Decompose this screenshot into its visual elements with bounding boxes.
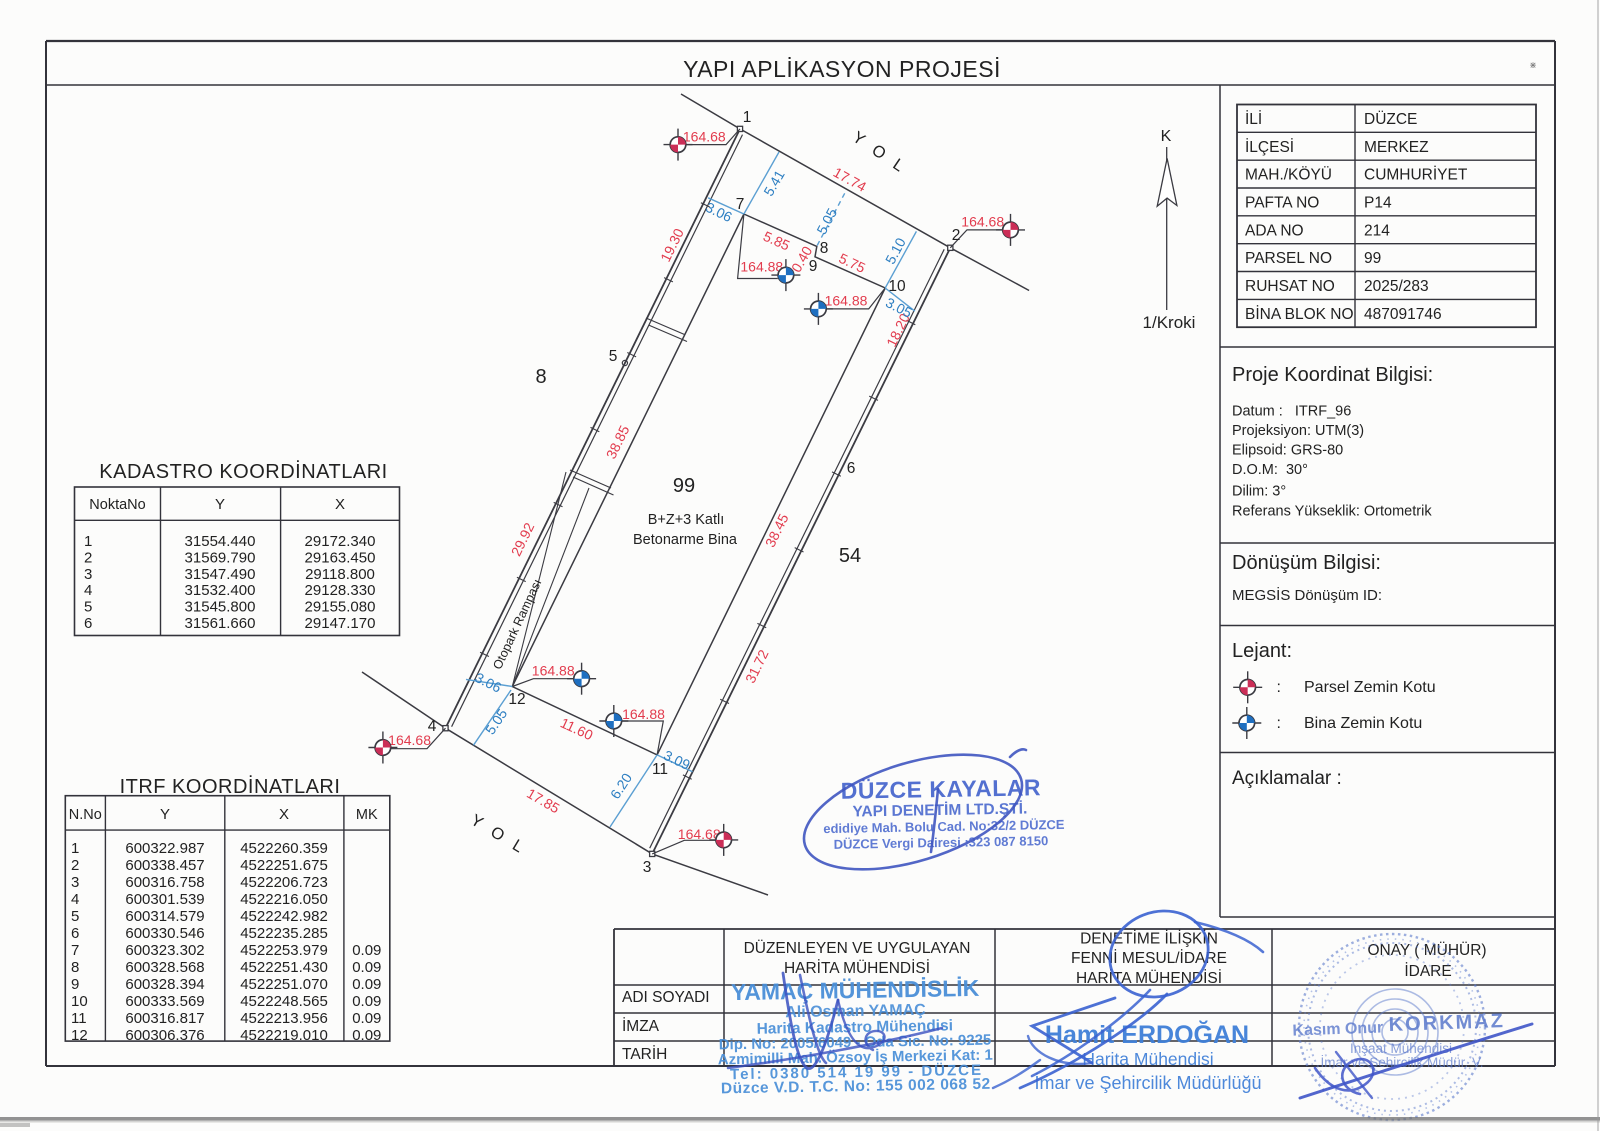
svg-text:PARSEL NO: PARSEL NO xyxy=(1245,250,1332,267)
svg-text:Dönüşüm Bilgisi:: Dönüşüm Bilgisi: xyxy=(1232,552,1381,574)
svg-text:TARİH: TARİH xyxy=(622,1045,667,1063)
svg-text::: : xyxy=(1276,679,1280,696)
svg-text:DÜZCE: DÜZCE xyxy=(1364,110,1417,128)
svg-text:600301.539: 600301.539 xyxy=(125,891,204,908)
svg-text:4522251.070: 4522251.070 xyxy=(240,976,328,993)
svg-text:12: 12 xyxy=(71,1027,88,1044)
svg-text:31532.400: 31532.400 xyxy=(185,582,256,599)
svg-text:29172.340: 29172.340 xyxy=(305,533,376,550)
svg-text:MERKEZ: MERKEZ xyxy=(1364,139,1429,156)
svg-text:2025/283: 2025/283 xyxy=(1364,278,1429,295)
svg-text:0.09: 0.09 xyxy=(352,993,381,1010)
svg-text:7: 7 xyxy=(736,196,745,213)
svg-text:4: 4 xyxy=(71,891,79,908)
svg-text:Açıklamalar :: Açıklamalar : xyxy=(1232,768,1342,789)
svg-text:600328.568: 600328.568 xyxy=(125,959,204,976)
svg-text:0.09: 0.09 xyxy=(352,1010,381,1027)
svg-text:4522235.285: 4522235.285 xyxy=(240,925,328,942)
svg-text:NoktaNo: NoktaNo xyxy=(89,497,145,513)
svg-text:4522242.982: 4522242.982 xyxy=(240,908,328,925)
svg-text:BİNA BLOK NO: BİNA BLOK NO xyxy=(1245,305,1354,323)
svg-text:12: 12 xyxy=(508,691,525,708)
svg-text:X: X xyxy=(279,806,289,823)
svg-text:Projeksiyon: UTM(3): Projeksiyon: UTM(3) xyxy=(1232,423,1364,439)
svg-text:Y: Y xyxy=(160,806,170,823)
svg-text:İDARE: İDARE xyxy=(1404,962,1451,980)
svg-text:4522251.430: 4522251.430 xyxy=(240,959,328,976)
svg-text:4522216.050: 4522216.050 xyxy=(240,891,328,908)
svg-text:600314.579: 600314.579 xyxy=(125,908,204,925)
svg-text:8: 8 xyxy=(71,959,79,976)
svg-text:1: 1 xyxy=(71,840,79,857)
svg-text:164.88: 164.88 xyxy=(740,259,783,275)
svg-text:164.68: 164.68 xyxy=(388,732,431,748)
svg-text:MEGSİS Dönüşüm ID:: MEGSİS Dönüşüm ID: xyxy=(1232,586,1382,604)
svg-text:31554.440: 31554.440 xyxy=(185,533,256,550)
svg-text:487091746: 487091746 xyxy=(1364,306,1442,323)
svg-text:99: 99 xyxy=(1364,250,1381,267)
svg-text:164.68: 164.68 xyxy=(683,128,726,144)
svg-text:600338.457: 600338.457 xyxy=(125,857,204,874)
svg-text:6: 6 xyxy=(84,615,92,632)
svg-text:4522260.359: 4522260.359 xyxy=(240,840,328,857)
svg-text:164.88: 164.88 xyxy=(825,293,868,309)
svg-text:3: 3 xyxy=(84,566,92,583)
svg-text:CUMHURİYET: CUMHURİYET xyxy=(1364,166,1468,184)
svg-text:9: 9 xyxy=(809,258,818,275)
svg-text:Datum : ITRF_96: Datum : ITRF_96 xyxy=(1232,404,1351,420)
svg-text:YAMAÇ MÜHENDİSLİK: YAMAÇ MÜHENDİSLİK xyxy=(731,975,980,1005)
svg-text:31569.790: 31569.790 xyxy=(185,550,256,567)
svg-text:29128.330: 29128.330 xyxy=(305,582,376,599)
svg-text:600328.394: 600328.394 xyxy=(125,976,204,993)
svg-text:4522248.565: 4522248.565 xyxy=(240,993,328,1010)
svg-text:4522213.956: 4522213.956 xyxy=(240,1010,328,1027)
svg-text:Proje Koordinat Bilgisi:: Proje Koordinat Bilgisi: xyxy=(1232,364,1433,386)
svg-text:0.09: 0.09 xyxy=(352,959,381,976)
svg-text:KORKMAZ: KORKMAZ xyxy=(1388,1010,1505,1036)
svg-text:1: 1 xyxy=(743,109,752,126)
svg-text:P14: P14 xyxy=(1364,194,1392,211)
svg-text:X: X xyxy=(335,496,345,513)
svg-text:164.88: 164.88 xyxy=(532,663,575,679)
svg-text:2: 2 xyxy=(952,227,961,244)
svg-text:Y: Y xyxy=(215,496,225,513)
svg-text:⋇: ⋇ xyxy=(1529,60,1537,70)
svg-text:DÜZCE KAYALAR: DÜZCE KAYALAR xyxy=(840,774,1041,803)
svg-text:1: 1 xyxy=(84,533,92,550)
svg-text:4522219.010: 4522219.010 xyxy=(240,1027,328,1044)
svg-text:Dilim: 3°: Dilim: 3° xyxy=(1232,484,1286,500)
svg-text:6: 6 xyxy=(71,925,79,942)
svg-text:600306.376: 600306.376 xyxy=(125,1027,204,1044)
svg-text:ADA NO: ADA NO xyxy=(1245,222,1304,239)
svg-text:RUHSAT NO: RUHSAT NO xyxy=(1245,278,1335,295)
svg-text:600330.546: 600330.546 xyxy=(125,925,204,942)
svg-text:4: 4 xyxy=(428,718,437,735)
svg-text:6: 6 xyxy=(847,460,856,477)
svg-text:54: 54 xyxy=(839,545,861,567)
svg-text:11: 11 xyxy=(652,761,668,778)
svg-text:PAFTA NO: PAFTA NO xyxy=(1245,194,1319,211)
svg-text:600333.569: 600333.569 xyxy=(125,993,204,1010)
svg-text:İLÇESİ: İLÇESİ xyxy=(1245,138,1294,156)
svg-text:11: 11 xyxy=(71,1010,87,1027)
svg-text:2: 2 xyxy=(71,857,79,874)
svg-text:1/Kroki: 1/Kroki xyxy=(1143,313,1196,332)
svg-text:164.68: 164.68 xyxy=(961,214,1004,230)
svg-text:ADI SOYADI: ADI SOYADI xyxy=(622,989,710,1006)
svg-text:3: 3 xyxy=(71,874,79,891)
svg-text:10: 10 xyxy=(888,278,906,295)
svg-text:İLİ: İLİ xyxy=(1245,110,1262,128)
svg-text:Harita Mühendisi: Harita Mühendisi xyxy=(1082,1049,1213,1069)
svg-text:FENNİ MESUL/İDARE: FENNİ MESUL/İDARE xyxy=(1071,949,1227,967)
svg-text:0.09: 0.09 xyxy=(352,1027,381,1044)
svg-text:600316.758: 600316.758 xyxy=(125,874,204,891)
svg-text:YAPI APLİKASYON PROJESİ: YAPI APLİKASYON PROJESİ xyxy=(683,56,1001,82)
svg-text:29118.800: 29118.800 xyxy=(305,566,375,583)
svg-text:9: 9 xyxy=(71,976,79,993)
svg-text:K: K xyxy=(1161,128,1172,145)
svg-text:4522251.675: 4522251.675 xyxy=(240,857,328,874)
svg-text:4522253.979: 4522253.979 xyxy=(240,942,328,959)
svg-text:5: 5 xyxy=(71,908,79,925)
svg-text:31561.660: 31561.660 xyxy=(185,615,256,632)
svg-text:600316.817: 600316.817 xyxy=(125,1010,204,1027)
svg-text:164.88: 164.88 xyxy=(622,706,665,722)
svg-text:İMZA: İMZA xyxy=(622,1017,660,1035)
svg-text:ONAY ( MÜHÜR): ONAY ( MÜHÜR) xyxy=(1367,941,1486,959)
svg-text:600323.302: 600323.302 xyxy=(125,942,204,959)
svg-text:29163.450: 29163.450 xyxy=(305,550,376,567)
svg-text:5: 5 xyxy=(609,348,618,365)
svg-text:D.O.M: 30°: D.O.M: 30° xyxy=(1232,462,1308,478)
svg-text:ITRF KOORDİNATLARI: ITRF KOORDİNATLARI xyxy=(120,775,341,798)
svg-text:MAH./KÖYÜ: MAH./KÖYÜ xyxy=(1245,166,1332,184)
svg-text:8: 8 xyxy=(820,240,829,257)
svg-text:4522206.723: 4522206.723 xyxy=(240,874,328,891)
svg-text:Lejant:: Lejant: xyxy=(1232,640,1292,662)
svg-text:10: 10 xyxy=(71,993,88,1010)
svg-text:99: 99 xyxy=(673,475,695,497)
svg-text:Hamit ERDOĞAN: Hamit ERDOĞAN xyxy=(1045,1020,1249,1049)
svg-text:2: 2 xyxy=(84,550,92,567)
svg-text:29147.170: 29147.170 xyxy=(305,615,376,632)
svg-text:İmar ve Şehircilik Müdürlüğü: İmar ve Şehircilik Müdürlüğü xyxy=(1034,1073,1261,1093)
svg-text:31547.490: 31547.490 xyxy=(185,566,256,583)
svg-text:DÜZENLEYEN VE UYGULAYAN: DÜZENLEYEN VE UYGULAYAN xyxy=(744,939,971,957)
svg-text:MK: MK xyxy=(356,807,378,823)
svg-text:Bina Zemin Kotu: Bina Zemin Kotu xyxy=(1304,715,1422,732)
svg-text:4: 4 xyxy=(84,582,92,599)
svg-text:Kasım Onur: Kasım Onur xyxy=(1292,1019,1383,1039)
svg-text:DENETİME İLİŞKİN: DENETİME İLİŞKİN xyxy=(1080,930,1218,948)
svg-text:KADASTRO KOORDİNATLARI: KADASTRO KOORDİNATLARI xyxy=(99,460,387,483)
svg-text:0.09: 0.09 xyxy=(352,942,381,959)
svg-text:3: 3 xyxy=(643,859,652,876)
svg-text:600322.987: 600322.987 xyxy=(125,840,204,857)
svg-text:Elipsoid: GRS-80: Elipsoid: GRS-80 xyxy=(1232,443,1343,459)
svg-text:Referans Yükseklik: Ortometrik: Referans Yükseklik: Ortometrik xyxy=(1232,504,1432,520)
svg-text:8: 8 xyxy=(535,366,546,388)
svg-text:214: 214 xyxy=(1364,222,1390,239)
svg-text:Parsel Zemin Kotu: Parsel Zemin Kotu xyxy=(1304,679,1436,696)
svg-text:29155.080: 29155.080 xyxy=(305,599,376,616)
svg-text:N.No: N.No xyxy=(69,807,102,823)
svg-text:Betonarme Bina: Betonarme Bina xyxy=(633,532,738,548)
svg-text:B+Z+3 Katlı: B+Z+3 Katlı xyxy=(648,512,725,528)
svg-text:7: 7 xyxy=(71,942,79,959)
svg-text::: : xyxy=(1276,715,1280,732)
svg-text:HARİTA MÜHENDİSİ: HARİTA MÜHENDİSİ xyxy=(784,959,930,977)
svg-text:31545.800: 31545.800 xyxy=(185,599,256,616)
svg-text:5: 5 xyxy=(84,599,92,616)
svg-text:0.09: 0.09 xyxy=(352,976,381,993)
